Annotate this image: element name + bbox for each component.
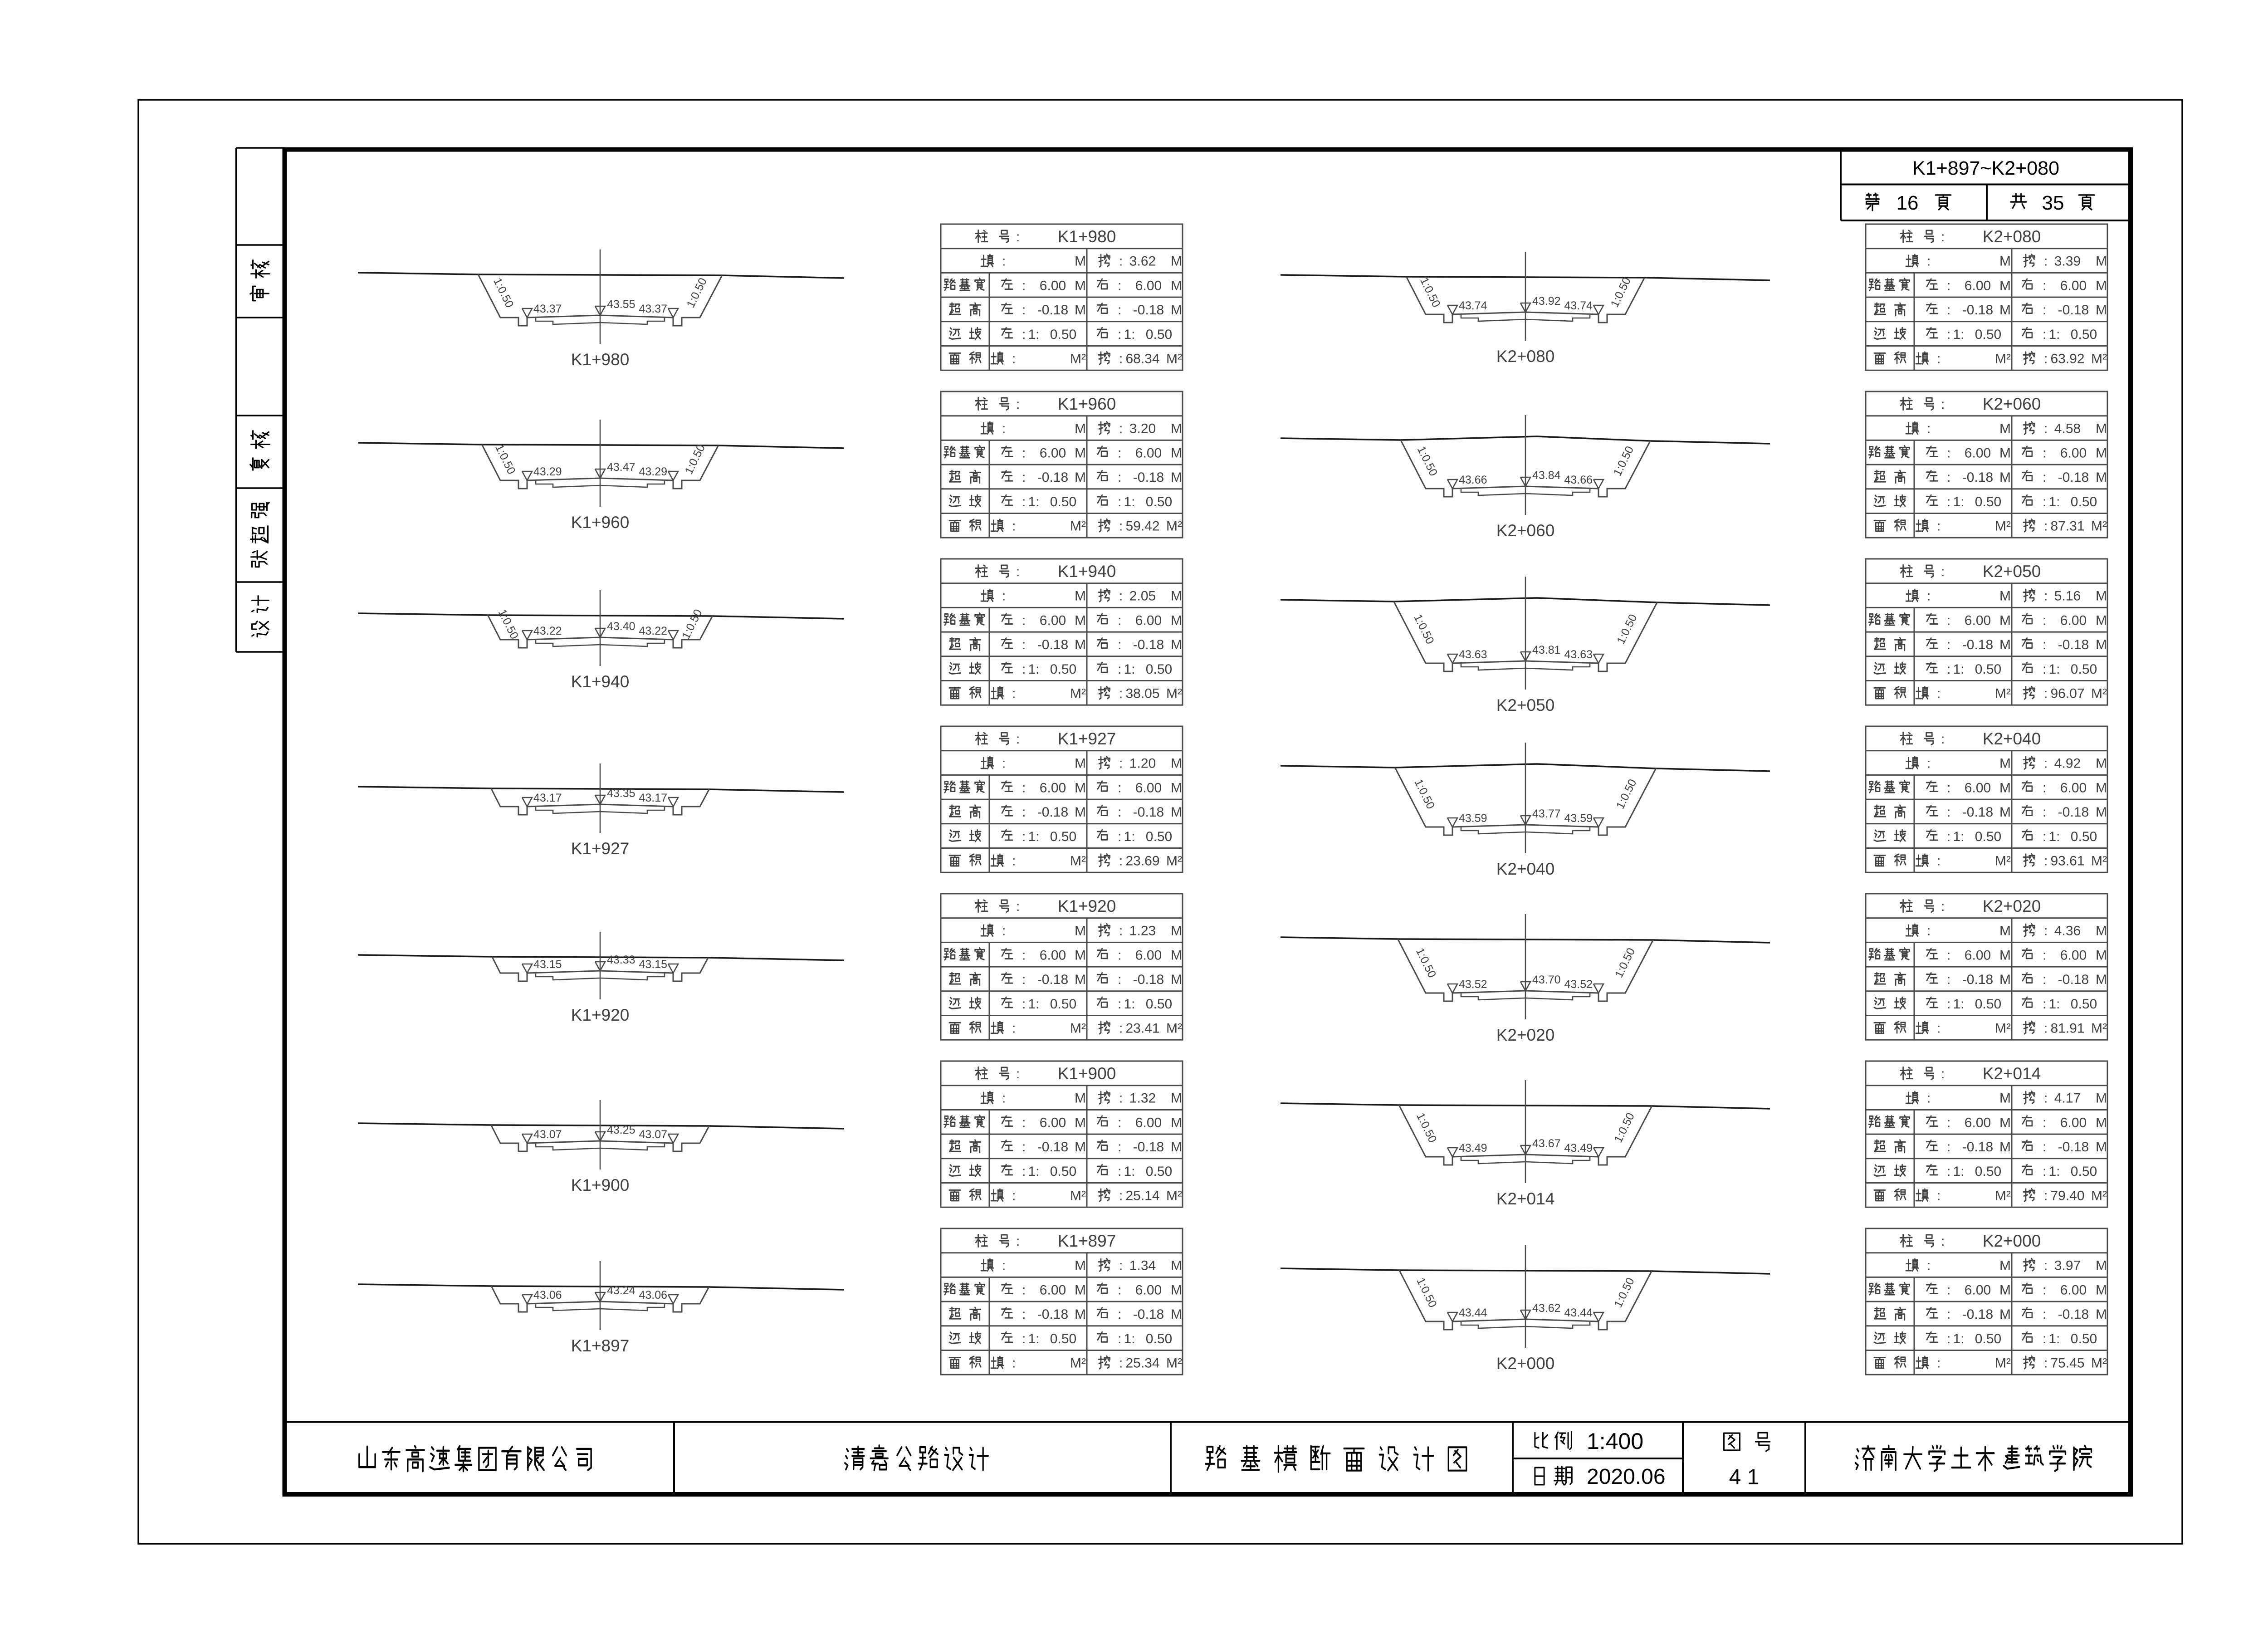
svg-text:63.92: 63.92 [2050,352,2084,367]
svg-text::: : [1947,1331,1950,1346]
svg-text::: : [1016,1067,1020,1081]
svg-text:1:: 1: [1953,494,1964,509]
svg-text:1:: 1: [1124,829,1135,844]
svg-text::: : [2043,997,2046,1012]
svg-text:1:: 1: [2048,1331,2060,1346]
svg-text:-0.18: -0.18 [1037,805,1068,820]
svg-text:K1+960: K1+960 [1058,395,1116,413]
svg-text:43.44: 43.44 [1459,1306,1487,1319]
svg-text:6.00: 6.00 [1040,445,1066,460]
svg-text::: : [2044,254,2048,269]
svg-text::: : [2043,1307,2046,1322]
svg-text:K2+050: K2+050 [1983,562,2041,581]
svg-text:0.50: 0.50 [1975,1331,2001,1346]
svg-text:M: M [1075,1307,1086,1322]
svg-text::: : [1118,470,1121,485]
svg-text:M: M [1075,1091,1086,1106]
svg-text:M: M [1075,1115,1086,1130]
svg-text:43.49: 43.49 [1564,1142,1593,1155]
svg-text:0.50: 0.50 [1975,829,2001,844]
svg-text:1:: 1: [1953,997,1964,1012]
svg-text:1:: 1: [2048,1164,2060,1179]
svg-text:6.00: 6.00 [1965,948,1991,963]
svg-text::: : [2043,278,2046,293]
svg-text:-0.18: -0.18 [1037,470,1068,485]
svg-text:43.06: 43.06 [533,1289,562,1301]
svg-text::: : [2043,637,2046,652]
svg-text:M: M [2096,637,2107,652]
svg-text::: : [1937,686,1941,701]
svg-text:M: M [1999,254,2011,269]
svg-text::: : [1022,1164,1026,1179]
svg-text::: : [1941,230,1945,245]
svg-text::: : [1119,1091,1123,1106]
svg-text::: : [1118,327,1121,342]
svg-text::: : [1118,1282,1121,1297]
svg-text::: : [1119,924,1123,939]
svg-text:0.50: 0.50 [1050,997,1076,1012]
svg-text:-0.18: -0.18 [1133,470,1164,485]
svg-text::: : [2043,303,2046,318]
svg-text::: : [1118,445,1121,460]
svg-text:1:: 1: [1124,662,1135,677]
svg-text:M²: M² [1070,854,1086,869]
svg-text::: : [1022,1307,1026,1322]
svg-text:K2+000: K2+000 [1496,1354,1555,1373]
svg-text:43.52: 43.52 [1564,978,1593,991]
svg-text:1:: 1: [1028,1164,1039,1179]
svg-text:-0.18: -0.18 [2058,637,2089,652]
svg-text:0.50: 0.50 [1975,662,2001,677]
svg-text:M²: M² [2091,686,2107,701]
svg-text::: : [1947,1164,1950,1179]
svg-text:6.00: 6.00 [1135,780,1162,795]
svg-text:43.17: 43.17 [533,792,562,804]
svg-text:6.00: 6.00 [1965,278,1991,293]
svg-text:M²: M² [2091,352,2107,367]
svg-text::: : [1119,352,1123,367]
svg-text:M²: M² [1166,1021,1182,1036]
svg-text::: : [1022,613,1026,628]
svg-text:M²: M² [2091,854,2107,869]
svg-text:43.22: 43.22 [533,625,562,637]
svg-text:43.67: 43.67 [1532,1137,1561,1150]
svg-text:-0.18: -0.18 [1133,805,1164,820]
svg-text:M²: M² [1070,1356,1086,1371]
svg-text:0.50: 0.50 [1975,327,2001,342]
svg-text:-0.18: -0.18 [1133,1140,1164,1155]
svg-text::: : [1002,1091,1006,1106]
svg-text::: : [1941,732,1945,747]
svg-text:K1+897: K1+897 [571,1336,630,1355]
svg-text:43.59: 43.59 [1564,812,1593,825]
svg-text:81.91: 81.91 [2050,1021,2084,1036]
svg-text::: : [2043,1115,2046,1130]
svg-text:M: M [1075,421,1086,436]
svg-text:3.39: 3.39 [2054,254,2081,269]
svg-text::: : [2043,780,2046,795]
svg-text::: : [2044,1021,2048,1036]
svg-text:6.00: 6.00 [2060,780,2087,795]
svg-text:M: M [1999,1307,2011,1322]
svg-text:M: M [1171,972,1182,987]
svg-text::: : [1118,1140,1121,1155]
svg-text::: : [1118,1331,1121,1346]
svg-text:M²: M² [2091,1189,2107,1204]
svg-text::: : [1022,997,1026,1012]
svg-text:M: M [1075,756,1086,771]
svg-text::: : [1118,948,1121,963]
svg-text:M: M [1171,470,1182,485]
svg-text:K2+050: K2+050 [1496,696,1555,714]
svg-text::: : [1022,637,1026,652]
svg-text::: : [1118,1164,1121,1179]
svg-text:43.29: 43.29 [639,465,667,478]
svg-text::: : [1119,589,1123,604]
svg-text::: : [2044,1356,2048,1371]
svg-text::: : [1012,519,1016,534]
svg-text:96.07: 96.07 [2050,686,2084,701]
svg-text::: : [1941,397,1945,412]
svg-text::: : [1947,972,1950,987]
svg-text:6.00: 6.00 [1965,1115,1991,1130]
svg-text:25.34: 25.34 [1125,1356,1159,1371]
svg-text:6.00: 6.00 [1135,1115,1162,1130]
svg-text:K2+000: K2+000 [1983,1232,2041,1250]
svg-text:-0.18: -0.18 [1037,972,1068,987]
svg-text::: : [2043,948,2046,963]
svg-text::: : [1941,564,1945,579]
svg-text:M: M [1075,637,1086,652]
svg-text:1:: 1: [1953,327,1964,342]
svg-text:1:: 1: [2048,997,2060,1012]
svg-text::: : [1022,470,1026,485]
svg-text:M²: M² [1070,686,1086,701]
svg-text::: : [1947,445,1950,460]
svg-text:-0.18: -0.18 [1133,637,1164,652]
svg-text:M²: M² [1166,519,1182,534]
svg-text:43.15: 43.15 [639,958,667,971]
svg-text:1:: 1: [1028,997,1039,1012]
svg-text:43.33: 43.33 [607,954,635,966]
svg-text:M: M [1999,445,2011,460]
svg-text:1.20: 1.20 [1129,756,1156,771]
svg-text:0.50: 0.50 [2071,997,2097,1012]
svg-text:0.50: 0.50 [1146,997,1172,1012]
svg-text:0.50: 0.50 [2071,1331,2097,1346]
svg-text:1:: 1: [1953,662,1964,677]
svg-text:M: M [1171,924,1182,939]
svg-text::: : [1119,854,1123,869]
svg-text:1:: 1: [1124,1164,1135,1179]
svg-text::: : [2043,494,2046,509]
svg-text:1:: 1: [1028,1331,1039,1346]
svg-text::: : [1016,230,1020,245]
svg-text:6.00: 6.00 [1965,613,1991,628]
svg-text:M: M [2096,1258,2107,1273]
svg-text:M: M [1999,589,2011,604]
svg-text:43.49: 43.49 [1459,1142,1487,1155]
svg-text:M²: M² [1995,686,2011,701]
svg-text:M: M [1999,303,2011,318]
svg-text::: : [1947,470,1950,485]
svg-text::: : [1022,805,1026,820]
svg-text::: : [1119,1189,1123,1204]
svg-text::: : [2043,1164,2046,1179]
svg-text::: : [1941,899,1945,914]
svg-text:M: M [1171,637,1182,652]
svg-text:6.00: 6.00 [1040,1115,1066,1130]
svg-text:6.00: 6.00 [2060,278,2087,293]
svg-text:1:: 1: [2048,662,2060,677]
svg-text::: : [2044,924,2048,939]
svg-text:M: M [1171,254,1182,269]
svg-text:6.00: 6.00 [2060,1282,2087,1297]
svg-text:M: M [1171,1307,1182,1322]
svg-text:M: M [1171,1115,1182,1130]
svg-text:43.63: 43.63 [1564,648,1593,661]
svg-text:M: M [1999,637,2011,652]
svg-text:M: M [1999,1282,2011,1297]
svg-text:M: M [1075,972,1086,987]
svg-text:25.14: 25.14 [1125,1189,1159,1204]
svg-text:0.50: 0.50 [2071,327,2097,342]
svg-text:M: M [1999,948,2011,963]
svg-text::: : [1947,1282,1950,1297]
svg-text:M: M [1171,1140,1182,1155]
svg-text:K1+940: K1+940 [1058,562,1116,581]
svg-text:0.50: 0.50 [1146,494,1172,509]
svg-text:M: M [2096,805,2107,820]
svg-text::: : [1002,1258,1006,1273]
svg-text::: : [1947,1115,1950,1130]
svg-text::: : [1016,732,1020,747]
svg-text::: : [1022,662,1026,677]
svg-text:0.50: 0.50 [1975,997,2001,1012]
svg-text:1:: 1: [1124,997,1135,1012]
svg-text:43.92: 43.92 [1532,295,1561,308]
svg-text:K1+960: K1+960 [571,513,630,532]
svg-text:0.50: 0.50 [2071,662,2097,677]
svg-text:M²: M² [1166,1356,1182,1371]
svg-text::: : [1002,421,1006,436]
svg-text::: : [1947,327,1950,342]
svg-text:M: M [1075,924,1086,939]
svg-text:M: M [2096,613,2107,628]
svg-text:K2+040: K2+040 [1496,860,1555,878]
svg-text:M: M [1171,756,1182,771]
svg-text:K2+060: K2+060 [1496,521,1555,540]
svg-text:1:: 1: [1124,1331,1135,1346]
svg-text:M: M [1999,1115,2011,1130]
svg-text:M: M [1171,1091,1182,1106]
svg-text:75.45: 75.45 [2050,1356,2084,1371]
svg-text:79.40: 79.40 [2050,1189,2084,1204]
svg-text::: : [1947,997,1950,1012]
svg-text::: : [1119,1356,1123,1371]
svg-text:-0.18: -0.18 [2058,805,2089,820]
svg-text:6.00: 6.00 [1135,278,1162,293]
svg-text:43.47: 43.47 [607,461,635,474]
svg-text:43.70: 43.70 [1532,974,1561,986]
svg-text:43.35: 43.35 [607,787,635,800]
svg-text::: : [2043,445,2046,460]
svg-text:M: M [2096,924,2107,939]
svg-text:1:: 1: [1028,829,1039,844]
svg-text::: : [1002,924,1006,939]
svg-text:M: M [2096,756,2107,771]
svg-text::: : [1927,756,1931,771]
svg-text::: : [1012,1021,1016,1036]
svg-text::: : [1022,494,1026,509]
svg-text:0.50: 0.50 [1146,662,1172,677]
svg-text:-0.18: -0.18 [1962,1140,1993,1155]
svg-text::: : [1937,854,1941,869]
svg-text:K2+014: K2+014 [1496,1189,1555,1208]
svg-text:6.00: 6.00 [1135,445,1162,460]
svg-text:-0.18: -0.18 [1962,637,1993,652]
svg-text:M: M [2096,1115,2107,1130]
svg-text:M: M [1171,948,1182,963]
svg-text:-0.18: -0.18 [1133,1307,1164,1322]
svg-text:43.37: 43.37 [533,303,562,315]
svg-text:M: M [1075,589,1086,604]
svg-text:43.07: 43.07 [533,1128,562,1141]
svg-text::: : [1927,254,1931,269]
svg-text::: : [1012,854,1016,869]
svg-text:M: M [1999,780,2011,795]
svg-text:4.17: 4.17 [2054,1091,2081,1106]
svg-text:K2+080: K2+080 [1983,227,2041,246]
svg-text:6.00: 6.00 [1040,1282,1066,1297]
svg-text:M: M [1075,470,1086,485]
svg-text:6.00: 6.00 [2060,445,2087,460]
svg-text::: : [1118,303,1121,318]
svg-text:2020.06: 2020.06 [1587,1465,1666,1489]
svg-text::: : [1937,519,1941,534]
svg-text:M: M [1171,445,1182,460]
svg-text:K1+920: K1+920 [571,1006,630,1024]
svg-text:M: M [2096,1091,2107,1106]
svg-text:1:: 1: [1124,494,1135,509]
svg-text:-0.18: -0.18 [1133,972,1164,987]
svg-text:-0.18: -0.18 [2058,1307,2089,1322]
svg-text::: : [2044,686,2048,701]
svg-text::: : [1947,805,1950,820]
svg-text:43.17: 43.17 [639,792,667,804]
svg-text::: : [1022,1331,1026,1346]
svg-text::: : [1119,254,1123,269]
svg-text::: : [1947,613,1950,628]
svg-text:0.50: 0.50 [1050,829,1076,844]
svg-text::: : [1016,899,1020,914]
svg-text:-0.18: -0.18 [1962,470,1993,485]
svg-text:1.34: 1.34 [1129,1258,1156,1273]
svg-text:0.50: 0.50 [1975,1164,2001,1179]
svg-text:K1+897: K1+897 [1058,1232,1116,1250]
svg-text::: : [1927,421,1931,436]
svg-text:M: M [1999,1258,2011,1273]
svg-text:M: M [1075,948,1086,963]
svg-text:1.23: 1.23 [1129,924,1156,939]
svg-text:M²: M² [1995,352,2011,367]
svg-text::: : [1119,421,1123,436]
svg-text::: : [1119,686,1123,701]
svg-text::: : [1016,564,1020,579]
svg-text:1:: 1: [2048,494,2060,509]
svg-text::: : [1012,686,1016,701]
svg-text:43.74: 43.74 [1459,299,1487,312]
svg-text:M: M [1075,1140,1086,1155]
svg-text::: : [1119,519,1123,534]
svg-text:6.00: 6.00 [1040,780,1066,795]
svg-text:-0.18: -0.18 [2058,1140,2089,1155]
svg-text::: : [2043,972,2046,987]
svg-text::: : [1118,494,1121,509]
svg-text:1:: 1: [1028,327,1039,342]
svg-text:K1+897~K2+080: K1+897~K2+080 [1912,157,2059,179]
svg-text:38.05: 38.05 [1125,686,1159,701]
svg-text::: : [1118,662,1121,677]
svg-text:M: M [2096,254,2107,269]
svg-text:M²: M² [1070,1189,1086,1204]
svg-text::: : [1937,1356,1941,1371]
svg-text:M: M [2096,948,2107,963]
svg-text:M: M [1075,613,1086,628]
svg-text:1:: 1: [1953,1331,1964,1346]
svg-text::: : [1118,997,1121,1012]
svg-text:M: M [1171,805,1182,820]
svg-text::: : [1947,948,1950,963]
svg-text:-0.18: -0.18 [1037,637,1068,652]
svg-text:M: M [1171,421,1182,436]
svg-text:M: M [2096,303,2107,318]
svg-text:K1+900: K1+900 [1058,1064,1116,1083]
svg-text:0.50: 0.50 [1050,662,1076,677]
svg-text:-0.18: -0.18 [2058,303,2089,318]
svg-text::: : [1002,756,1006,771]
svg-text:3.97: 3.97 [2054,1258,2081,1273]
svg-text:M: M [1075,780,1086,795]
svg-text:M²: M² [1995,519,2011,534]
svg-text:M: M [2096,972,2107,987]
svg-text:-0.18: -0.18 [1037,1307,1068,1322]
svg-text:M²: M² [2091,1356,2107,1371]
svg-text:1:: 1: [2048,327,2060,342]
svg-text:6.00: 6.00 [1135,1282,1162,1297]
svg-text::: : [1947,1140,1950,1155]
svg-text:M: M [2096,278,2107,293]
svg-text:43.07: 43.07 [639,1128,667,1141]
svg-text::: : [1937,1021,1941,1036]
svg-text::: : [1002,254,1006,269]
svg-text:6.00: 6.00 [1040,278,1066,293]
svg-text:2.05: 2.05 [1129,589,1156,604]
svg-text:43.62: 43.62 [1532,1302,1561,1315]
svg-text::: : [1022,948,1026,963]
svg-text::: : [2044,519,2048,534]
svg-text:43.44: 43.44 [1564,1306,1593,1319]
svg-text:1.32: 1.32 [1129,1091,1156,1106]
svg-text:M: M [1171,589,1182,604]
svg-text:1:: 1: [1953,829,1964,844]
svg-text:K2+080: K2+080 [1496,347,1555,366]
svg-text:M²: M² [1166,854,1182,869]
svg-text::: : [1022,327,1026,342]
svg-text::: : [2043,1282,2046,1297]
svg-text:6.00: 6.00 [1965,1282,1991,1297]
svg-text:M: M [2096,1307,2107,1322]
